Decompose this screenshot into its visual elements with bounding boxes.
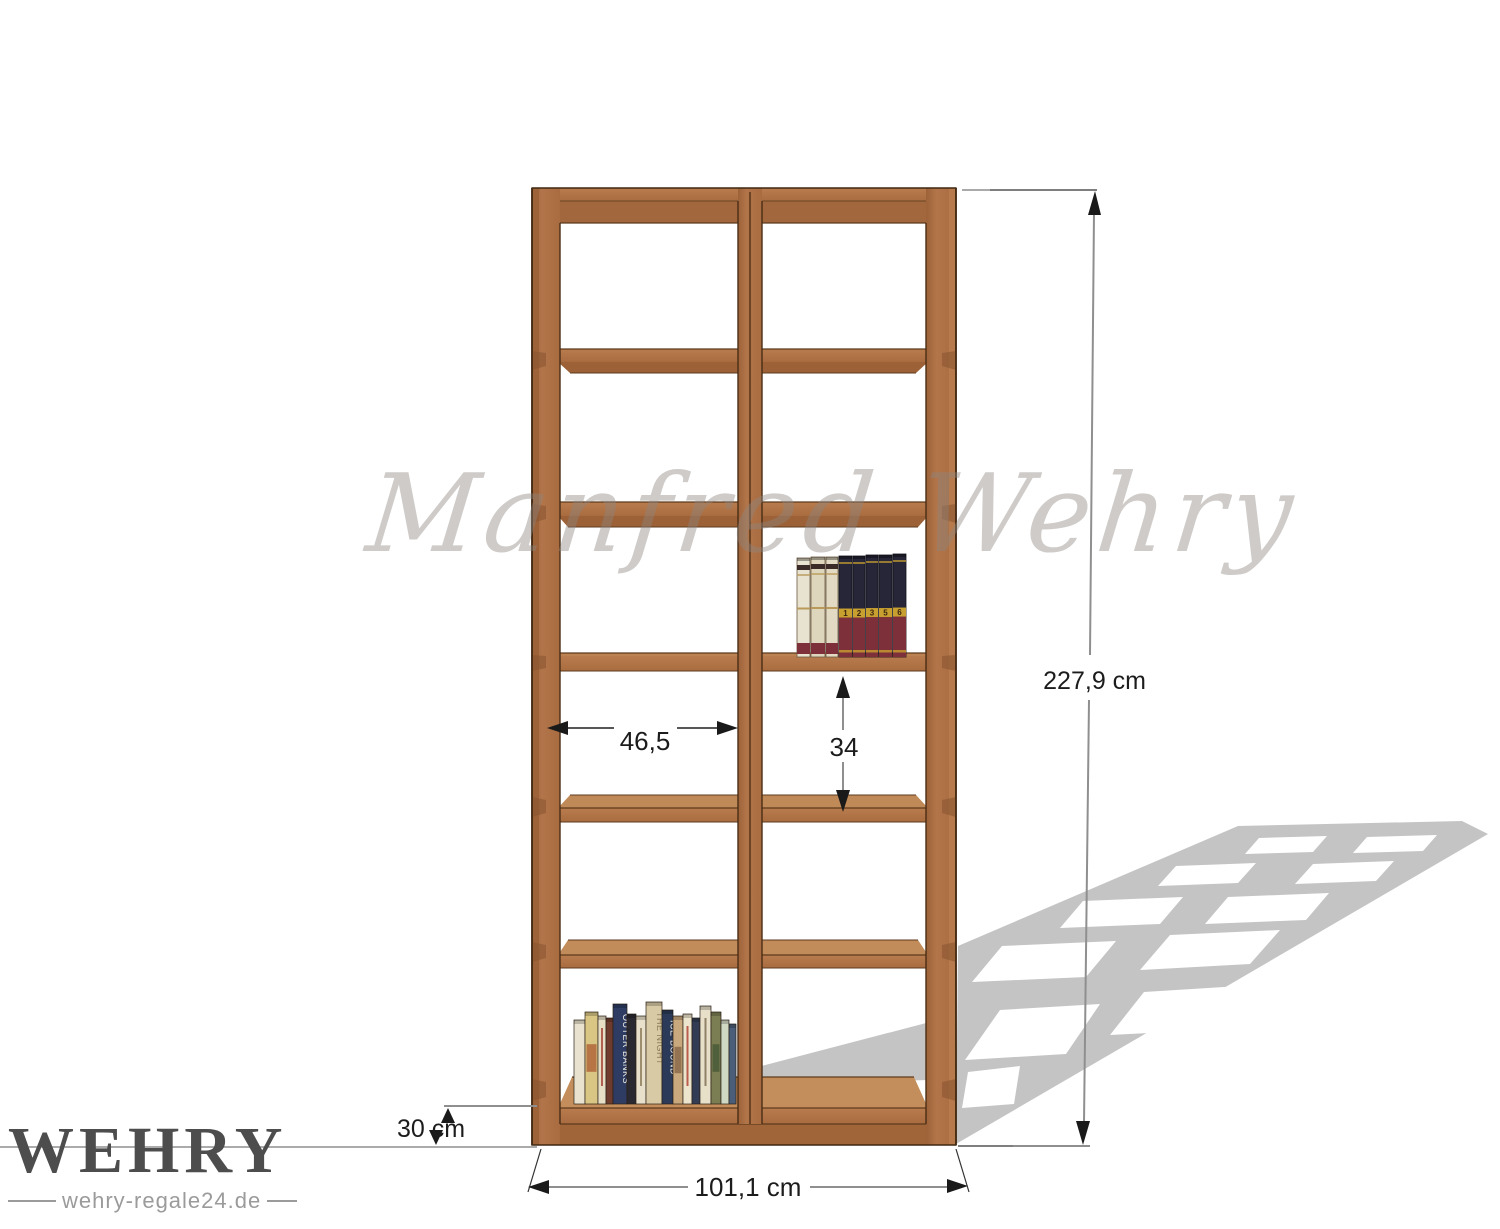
arrow-up-icon — [836, 676, 850, 698]
book-spine: 3 — [866, 555, 878, 657]
book-spine — [700, 1006, 711, 1104]
brand-website-row: wehry-regale24.de — [8, 1188, 338, 1214]
arrow-right-icon — [947, 1179, 968, 1193]
dim-total-width: 101,1 cm — [528, 1149, 969, 1202]
book-spine — [598, 1016, 606, 1104]
book-spine: 5 — [879, 555, 892, 657]
book-spine — [585, 1012, 598, 1104]
shadow-through-compartment — [746, 1022, 930, 1084]
volume-number: 6 — [897, 608, 902, 617]
book-spine — [627, 1014, 636, 1104]
book-spine — [721, 1020, 729, 1104]
book-spine — [711, 1012, 721, 1104]
books-encyclopedia-set: 12356 — [797, 554, 906, 657]
volume-number: 5 — [883, 609, 888, 618]
arrow-right-icon — [717, 721, 738, 735]
book-spine — [811, 557, 825, 657]
book-spine — [826, 557, 838, 657]
middle-stile — [738, 188, 762, 1124]
book-spine — [636, 1016, 646, 1104]
depth-label: 30 cm — [397, 1115, 465, 1143]
dim-compartment-height: 34 — [830, 676, 859, 812]
book-spine — [606, 1018, 613, 1104]
dim-compartment-width: 46,5 — [547, 721, 738, 756]
compartment-width-label: 46,5 — [620, 726, 671, 756]
total-height-label: 227,9 cm — [1043, 667, 1146, 695]
book-spine — [692, 1018, 700, 1104]
book-spine — [797, 558, 810, 657]
book-spine — [574, 1020, 585, 1104]
bookcase — [532, 188, 956, 1145]
dim-depth: 30 cm — [397, 1106, 537, 1145]
brand-name: WEHRY — [8, 1118, 338, 1184]
arrow-down-icon — [1076, 1121, 1090, 1145]
volume-number: 3 — [870, 609, 875, 618]
total-width-label: 101,1 cm — [695, 1172, 802, 1202]
books-bottom-left: OUTER BANKSTHE NIGHTICE-BOUND — [574, 1002, 736, 1104]
compartment-height-label: 34 — [830, 732, 859, 762]
arrow-up-icon — [1088, 191, 1101, 215]
book-spine — [673, 1016, 683, 1104]
tagline-dash-left — [8, 1200, 56, 1202]
book-spine: 1 — [839, 556, 852, 657]
brand-website: wehry-regale24.de — [62, 1188, 261, 1214]
shelf-drawing: OUTER BANKSTHE NIGHTICE-BOUND 12356 227,… — [0, 0, 1500, 1229]
volume-number: 2 — [857, 609, 862, 618]
brand-logo: WEHRY wehry-regale24.de — [8, 1118, 338, 1214]
book-spine: 2 — [853, 556, 865, 657]
book-spine — [729, 1024, 736, 1104]
book-spine: 6 — [893, 554, 906, 657]
tagline-dash-right — [267, 1200, 297, 1202]
volume-number: 1 — [843, 609, 848, 618]
book-spine — [683, 1014, 692, 1104]
product-diagram: OUTER BANKSTHE NIGHTICE-BOUND 12356 227,… — [0, 0, 1500, 1229]
